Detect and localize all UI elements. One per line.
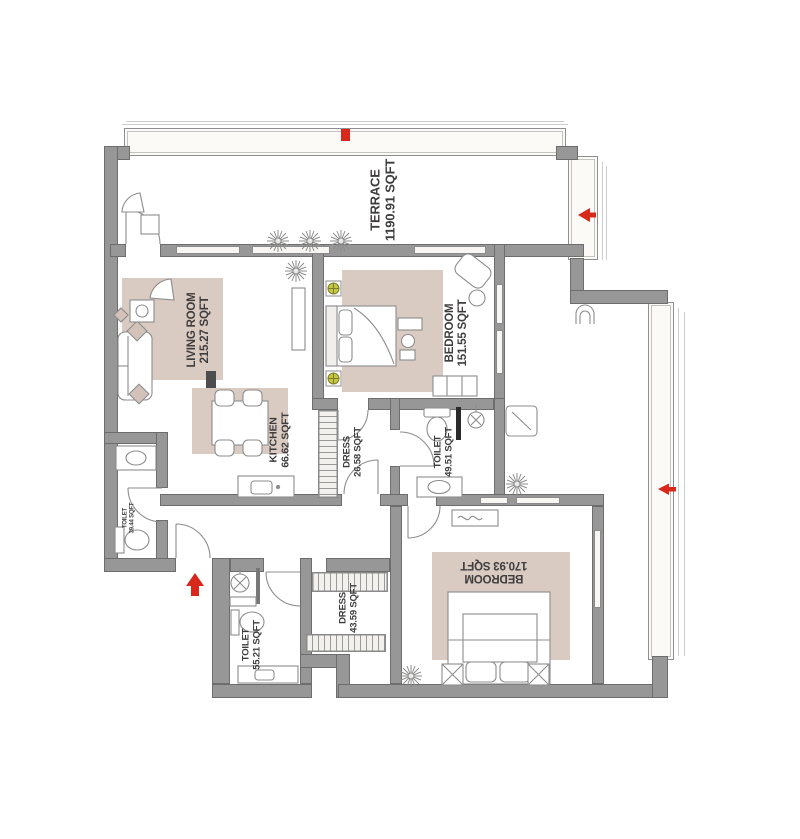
dining-table xyxy=(212,401,268,445)
plan-linework xyxy=(0,0,800,839)
door-toilet-bottom xyxy=(266,572,300,606)
shower-partition xyxy=(456,407,461,440)
marker-top-window xyxy=(341,129,350,141)
door-bedroom-bottom xyxy=(408,506,440,538)
room-name: LIVING ROOM xyxy=(186,292,199,367)
desk-item xyxy=(400,350,415,360)
cushion xyxy=(114,308,128,322)
room-area: 170.93 SQFT xyxy=(461,558,528,571)
plant-icon xyxy=(400,665,422,687)
room-label-terrace: TERRACE 1190.91 SQFT xyxy=(368,159,397,241)
toilet-left-fixtures xyxy=(115,446,156,553)
basin xyxy=(126,451,146,465)
entry-arrow-icon xyxy=(186,573,204,596)
lounge-chair xyxy=(122,193,144,212)
basin xyxy=(428,481,450,494)
desk xyxy=(452,510,498,526)
red-markers xyxy=(186,129,676,596)
room-label-toilet-bottom: TOILET 55.21 SQFT xyxy=(241,620,262,670)
dresser xyxy=(433,376,477,396)
room-area: 49.51 SQFT xyxy=(444,427,455,477)
room-label-bedroom-bottom: BEDROOM 170.93 SQFT xyxy=(461,558,528,584)
room-area: 55.21 SQFT xyxy=(252,620,263,670)
room-label-bedroom-top: BEDROOM 151.55 SQFT xyxy=(444,300,470,367)
pillow xyxy=(339,310,352,335)
faucet xyxy=(276,485,279,488)
plant-icon xyxy=(267,230,289,252)
marker-right-window xyxy=(658,484,676,496)
armchair xyxy=(150,279,174,300)
door-arcs xyxy=(126,210,440,606)
shower-partition xyxy=(256,568,260,604)
pillow xyxy=(339,337,352,362)
plant-icon xyxy=(299,230,321,252)
room-name: TOILET xyxy=(122,503,129,534)
room-area: 215.27 SQFT xyxy=(199,292,212,367)
room-name: BEDROOM xyxy=(444,300,457,367)
room-name: TERRACE xyxy=(368,159,383,241)
room-name: KITCHEN xyxy=(268,412,280,467)
tv-unit xyxy=(292,288,305,350)
light-icon xyxy=(326,371,341,386)
chair xyxy=(243,440,262,456)
side-table xyxy=(141,215,159,234)
cistern xyxy=(424,408,450,417)
pillow xyxy=(500,662,530,682)
room-label-toilet-left: TOILET 39.44 SQFT xyxy=(122,503,135,534)
stool xyxy=(402,335,415,348)
room-name: BEDROOM xyxy=(461,571,528,584)
pillow xyxy=(466,662,496,682)
plant-icon xyxy=(285,260,307,282)
side-table xyxy=(469,290,485,306)
shelf xyxy=(230,597,256,606)
room-label-living-room: LIVING ROOM 215.27 SQFT xyxy=(186,292,212,367)
room-area: 151.55 SQFT xyxy=(457,300,470,367)
plant-icon xyxy=(506,473,528,495)
room-area: 39.44 SQFT xyxy=(129,503,136,534)
armchair xyxy=(452,251,494,291)
chair xyxy=(215,390,234,406)
floor-plan: TERRACE 1190.91 SQFT LIVING ROOM 215.27 … xyxy=(0,0,800,839)
lamp xyxy=(136,305,148,317)
room-label-dress-bottom: DRESS 43.59 SQFT xyxy=(338,583,359,633)
room-area: 66.62 SQFT xyxy=(280,412,292,467)
bedroom-bottom-furniture xyxy=(442,510,550,685)
sink xyxy=(251,481,272,494)
room-area: 43.59 SQFT xyxy=(349,583,360,633)
headboard xyxy=(326,306,337,366)
sink xyxy=(255,670,274,680)
marker-terrace-window xyxy=(578,208,596,222)
room-area: 26.58 SQFT xyxy=(353,427,364,477)
mattress xyxy=(463,614,537,662)
door-entry xyxy=(176,524,210,558)
plant-icon xyxy=(330,230,352,252)
desk xyxy=(398,318,422,330)
room-label-toilet-top: TOILET 49.51 SQFT xyxy=(433,427,454,477)
pendant-light xyxy=(206,371,216,388)
chair xyxy=(215,440,234,456)
room-area: 1190.91 SQFT xyxy=(383,159,398,241)
room-label-dress-top: DRESS 26.58 SQFT xyxy=(342,427,363,477)
chair xyxy=(243,390,262,406)
cistern xyxy=(231,610,239,635)
room-label-kitchen: KITCHEN 66.62 SQFT xyxy=(268,412,292,467)
toilet-bottom-fixtures xyxy=(230,568,298,683)
light-icon xyxy=(326,281,341,296)
door-toilet-top xyxy=(400,432,434,466)
wall-niche xyxy=(576,305,594,324)
